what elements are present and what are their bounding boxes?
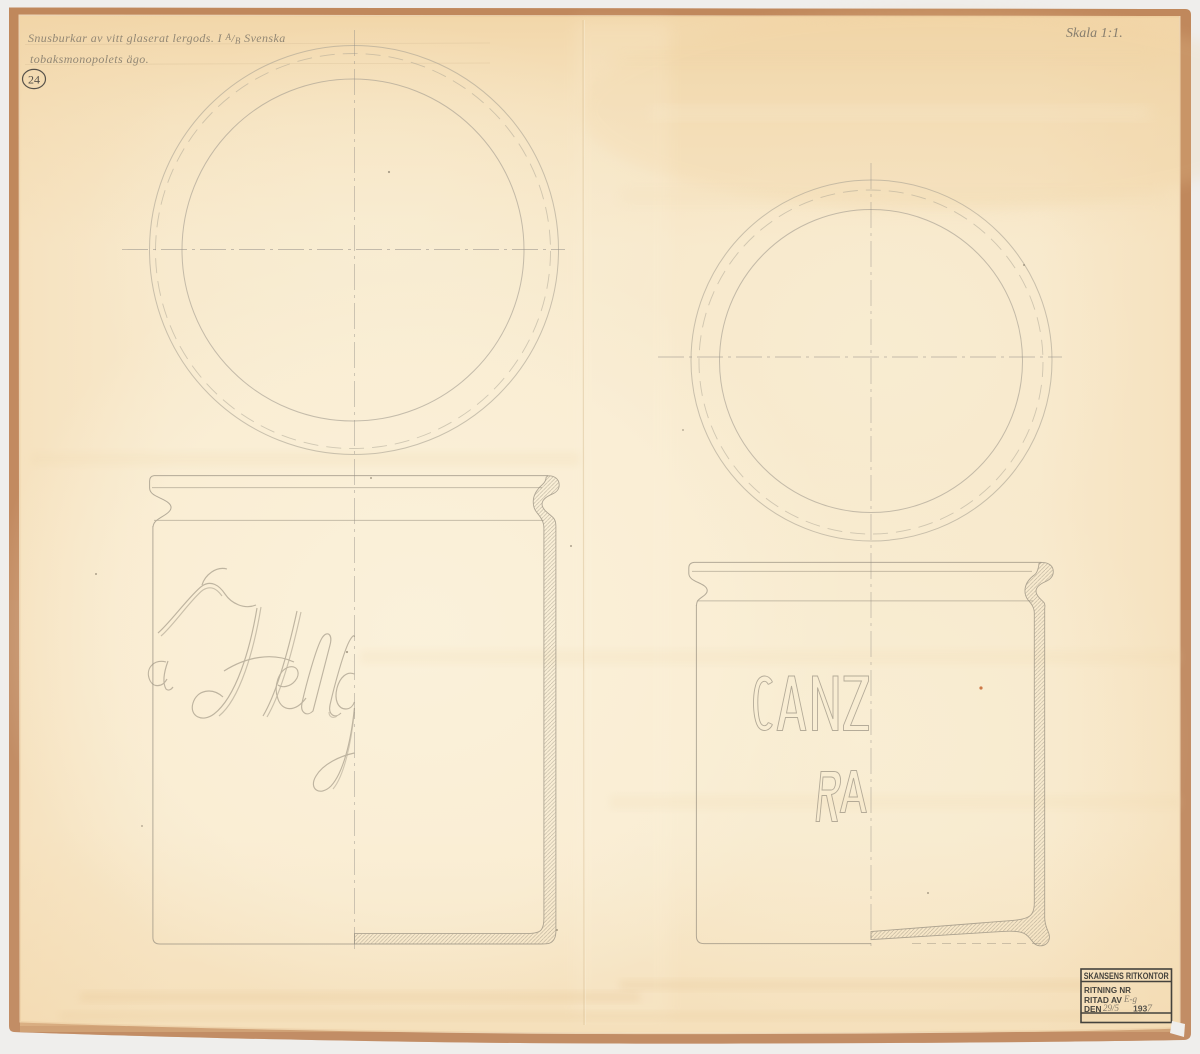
svg-text:Skala 1:1.: Skala 1:1.: [1066, 26, 1123, 41]
svg-text:SKANSENS RITKONTOR: SKANSENS RITKONTOR: [1084, 971, 1170, 981]
svg-text:E-g: E-g: [1123, 994, 1137, 1004]
svg-text:24: 24: [28, 73, 40, 87]
svg-text:DEN: DEN: [1084, 1004, 1102, 1014]
svg-text:29/5: 29/5: [1103, 1003, 1120, 1013]
svg-text:193: 193: [1133, 1004, 1148, 1014]
